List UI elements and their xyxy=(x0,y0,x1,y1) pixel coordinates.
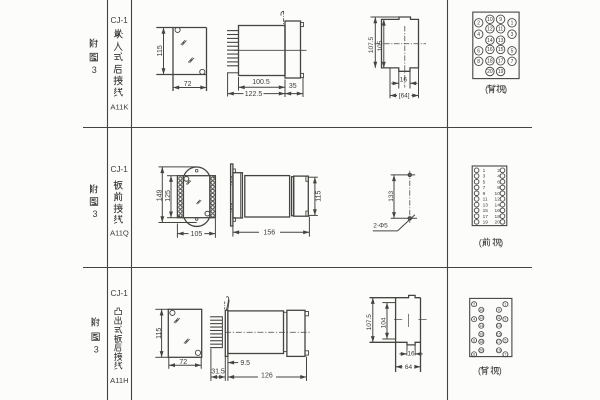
svg-text:19: 19 xyxy=(497,349,501,353)
svg-text:14: 14 xyxy=(495,202,501,208)
svg-text:9: 9 xyxy=(499,17,502,23)
svg-text:16: 16 xyxy=(487,47,493,53)
svg-text:18: 18 xyxy=(487,59,493,65)
svg-text:18: 18 xyxy=(479,340,483,344)
svg-text:13: 13 xyxy=(498,38,504,44)
svg-text:7: 7 xyxy=(504,353,506,357)
svg-text:149: 149 xyxy=(156,189,163,201)
svg-text:5: 5 xyxy=(511,49,514,55)
svg-text:3: 3 xyxy=(504,317,506,321)
svg-text:13: 13 xyxy=(483,202,489,208)
svg-text:1: 1 xyxy=(483,168,486,174)
svg-text:12: 12 xyxy=(487,27,493,33)
svg-text:6: 6 xyxy=(477,49,480,55)
svg-text:17: 17 xyxy=(497,340,501,344)
svg-text:100.5: 100.5 xyxy=(252,79,270,86)
svg-text:14: 14 xyxy=(479,324,483,328)
svg-text:104: 104 xyxy=(381,317,388,328)
svg-text:17: 17 xyxy=(483,214,489,220)
svg-text:14: 14 xyxy=(487,38,493,44)
svg-text:2: 2 xyxy=(473,302,475,306)
svg-text:31.5: 31.5 xyxy=(211,368,225,375)
svg-text:107.5: 107.5 xyxy=(368,36,375,53)
svg-text:115: 115 xyxy=(156,328,163,339)
svg-text:64: 64 xyxy=(405,364,413,371)
svg-text:115: 115 xyxy=(157,45,164,56)
svg-text:17: 17 xyxy=(498,59,504,65)
svg-text:5: 5 xyxy=(483,179,486,185)
svg-text:4: 4 xyxy=(497,174,500,180)
svg-text:7: 7 xyxy=(483,185,486,191)
svg-text:12: 12 xyxy=(479,316,483,320)
svg-text:19: 19 xyxy=(483,220,489,226)
svg-text:CJ-1: CJ-1 xyxy=(111,165,129,174)
svg-text:11: 11 xyxy=(483,197,488,203)
svg-text:A11K: A11K xyxy=(110,103,128,112)
svg-text:9: 9 xyxy=(498,308,500,312)
svg-text:156: 156 xyxy=(263,229,275,236)
svg-text:4: 4 xyxy=(477,32,480,38)
svg-text:72: 72 xyxy=(179,359,187,366)
svg-text:11: 11 xyxy=(497,316,501,320)
svg-text:35: 35 xyxy=(289,83,297,90)
svg-text:5: 5 xyxy=(504,339,506,343)
svg-text:9: 9 xyxy=(483,191,486,197)
svg-text:20: 20 xyxy=(495,220,501,226)
svg-text:10: 10 xyxy=(487,17,493,23)
svg-text:6: 6 xyxy=(497,179,500,185)
svg-text:11: 11 xyxy=(498,27,503,33)
svg-text:15: 15 xyxy=(498,47,504,53)
svg-text:19: 19 xyxy=(498,69,504,75)
svg-text:3: 3 xyxy=(92,65,97,75)
svg-text:[64]: [64] xyxy=(399,93,410,100)
svg-text:10: 10 xyxy=(479,308,483,312)
svg-text:16: 16 xyxy=(400,77,408,84)
svg-text:3: 3 xyxy=(511,32,514,38)
svg-text:133: 133 xyxy=(388,190,395,201)
svg-text:2-Φ5: 2-Φ5 xyxy=(373,223,388,230)
svg-text:1: 1 xyxy=(504,302,506,306)
svg-text:12: 12 xyxy=(495,197,501,203)
svg-text:8: 8 xyxy=(477,59,480,65)
svg-text:15: 15 xyxy=(497,332,501,336)
svg-text:): ) xyxy=(500,237,503,247)
svg-text:3: 3 xyxy=(94,345,99,355)
svg-text:2: 2 xyxy=(477,21,480,27)
svg-text:125: 125 xyxy=(165,190,172,202)
svg-text:(: ( xyxy=(479,237,482,247)
svg-text:16: 16 xyxy=(407,351,415,358)
svg-text:126: 126 xyxy=(261,372,273,379)
svg-text:115: 115 xyxy=(315,191,322,202)
svg-text:18: 18 xyxy=(495,214,501,220)
svg-text:20: 20 xyxy=(487,69,493,75)
svg-text:72: 72 xyxy=(184,81,192,88)
svg-text:10: 10 xyxy=(495,191,501,197)
svg-text:8: 8 xyxy=(473,353,475,357)
svg-text:8: 8 xyxy=(497,185,500,191)
svg-text:2: 2 xyxy=(497,168,500,174)
svg-text:105: 105 xyxy=(377,40,384,51)
svg-text:4: 4 xyxy=(473,317,475,321)
svg-text:1: 1 xyxy=(511,21,514,27)
svg-text:9.5: 9.5 xyxy=(240,360,250,367)
svg-text:16: 16 xyxy=(495,208,501,214)
svg-text:CJ-1: CJ-1 xyxy=(111,16,129,25)
svg-text:(: ( xyxy=(478,366,481,376)
svg-text:CJ-1: CJ-1 xyxy=(111,289,129,298)
svg-text:): ) xyxy=(504,84,507,94)
svg-text:20: 20 xyxy=(479,349,483,353)
svg-text:107.5: 107.5 xyxy=(366,314,373,331)
svg-text:7: 7 xyxy=(511,59,514,65)
svg-text:A11Q: A11Q xyxy=(110,228,129,237)
svg-text:6: 6 xyxy=(473,339,475,343)
svg-text:3: 3 xyxy=(92,209,97,219)
svg-text:A11H: A11H xyxy=(110,376,128,385)
svg-text:122.5: 122.5 xyxy=(245,91,263,98)
svg-text:105: 105 xyxy=(191,231,203,238)
svg-text:16: 16 xyxy=(479,332,483,336)
svg-text:13: 13 xyxy=(497,324,501,328)
svg-text:15: 15 xyxy=(483,208,489,214)
svg-text:): ) xyxy=(499,366,502,376)
svg-text:3: 3 xyxy=(483,174,486,180)
